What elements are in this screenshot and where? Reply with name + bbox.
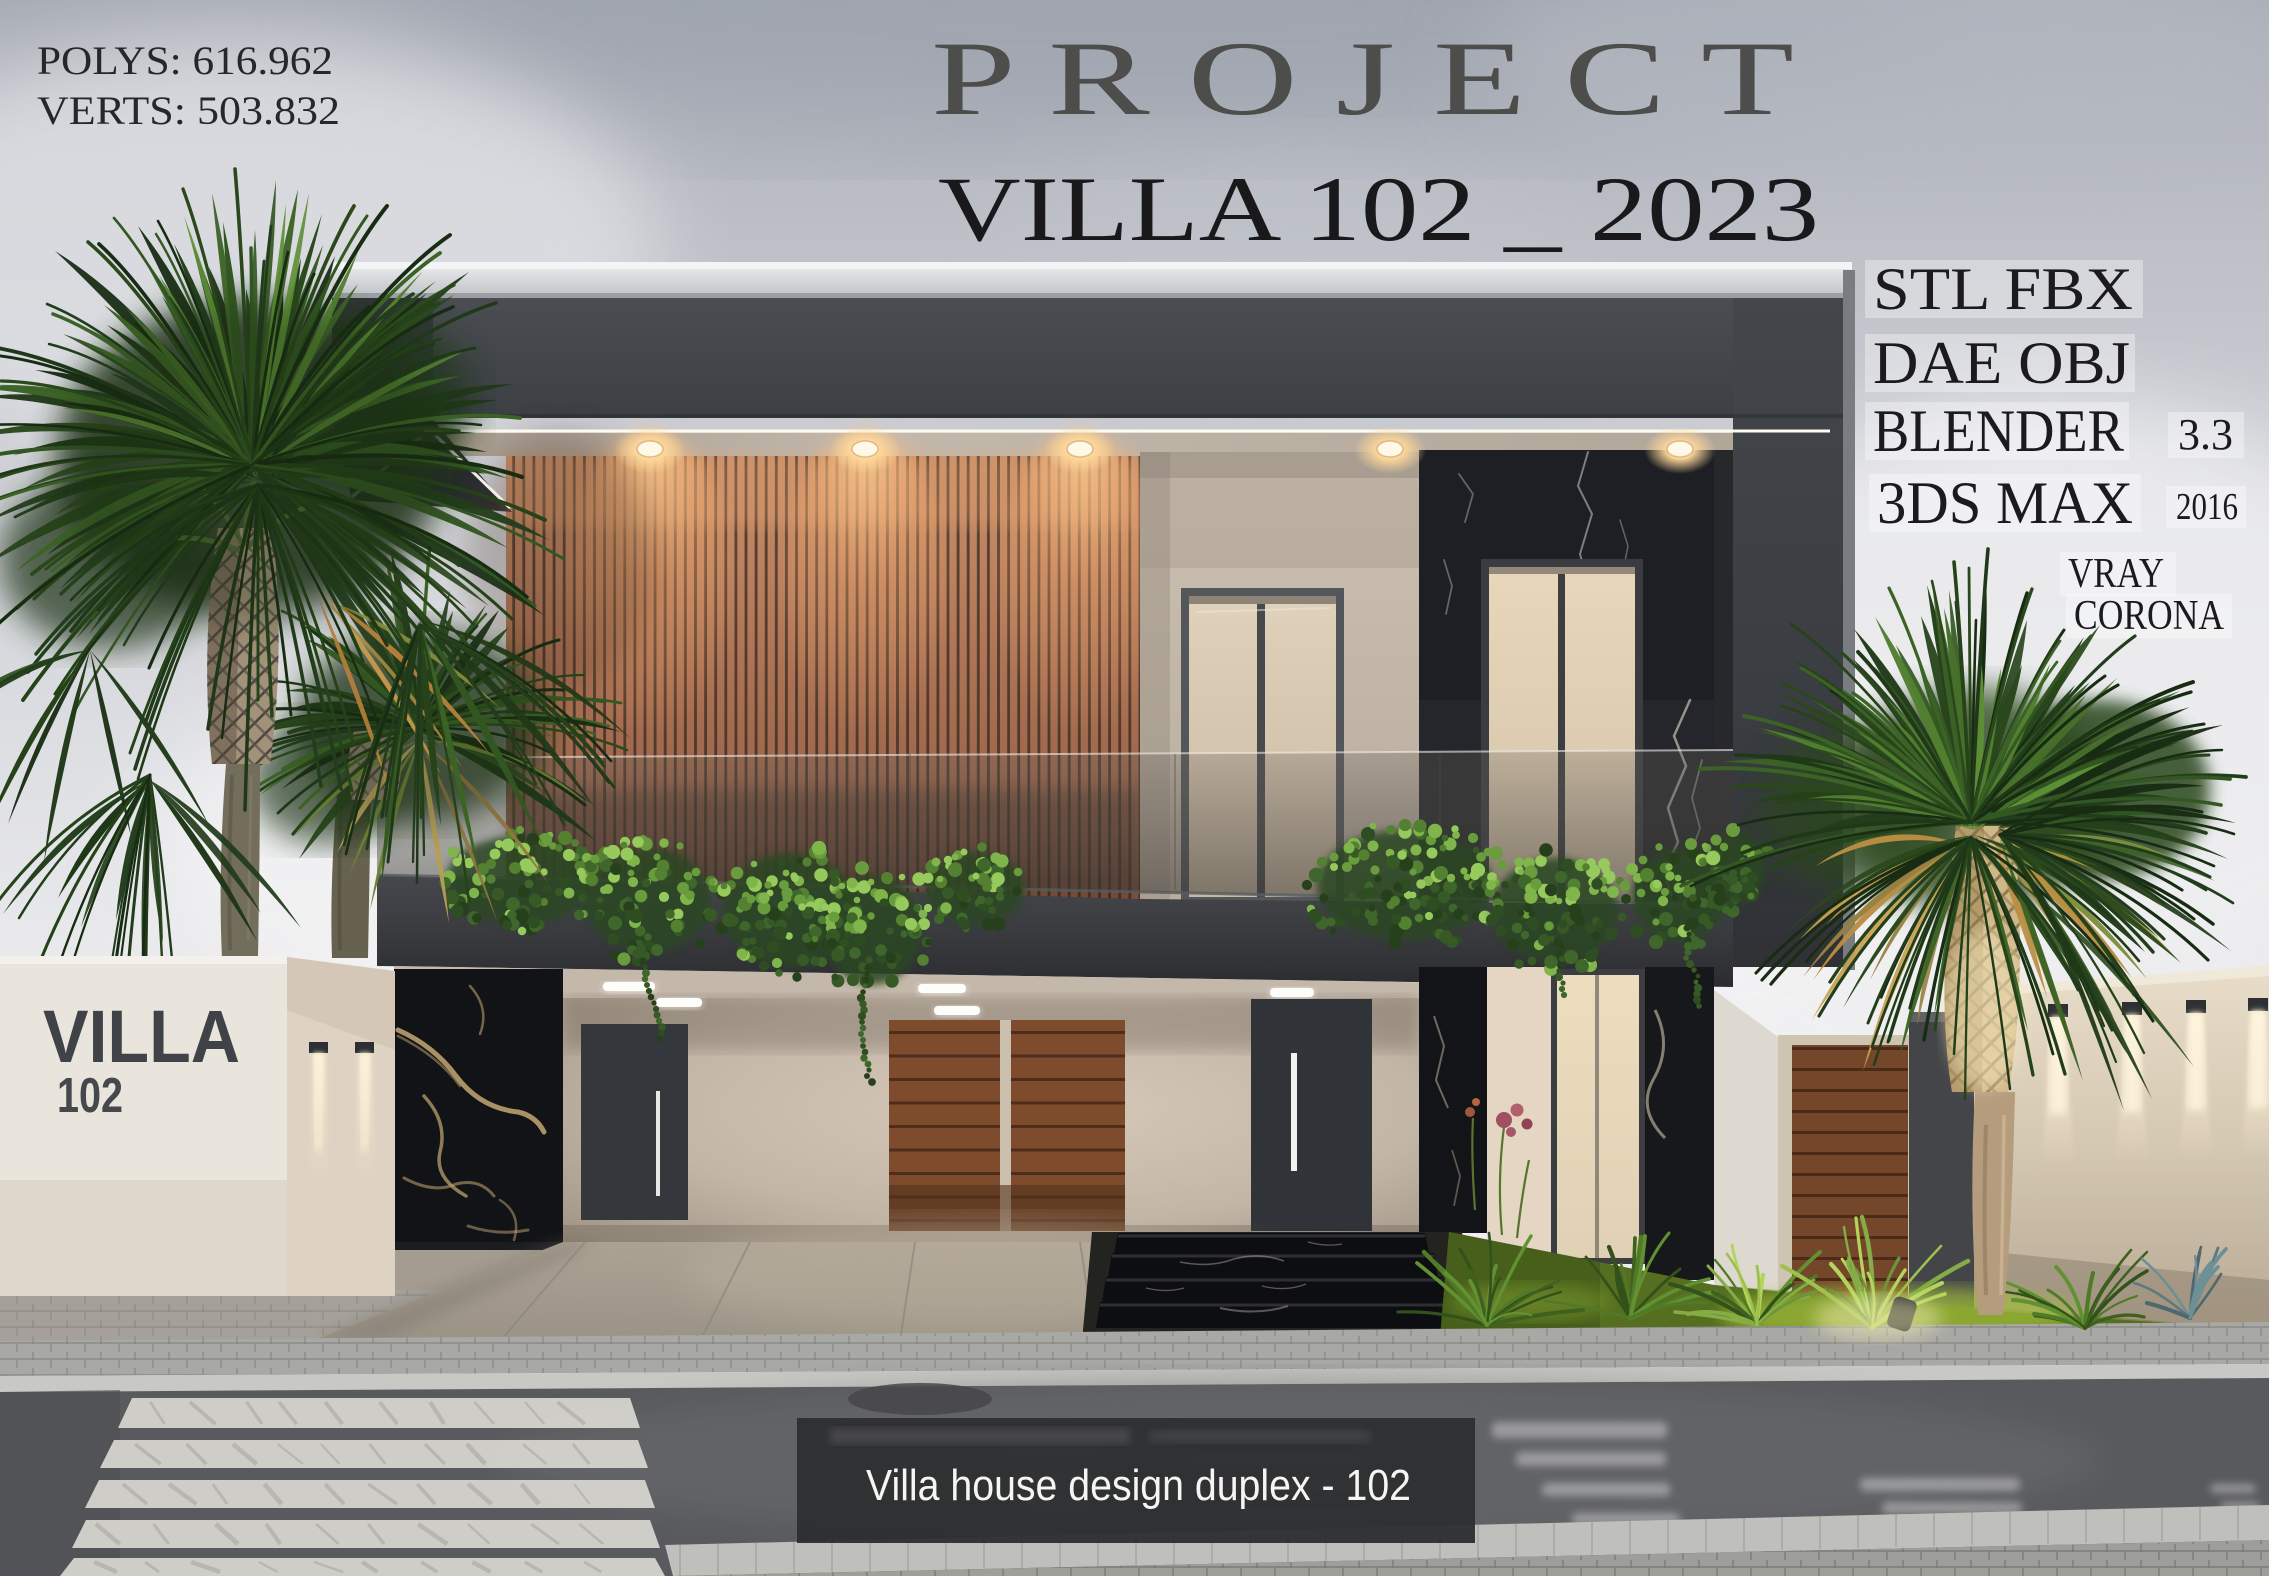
svg-text:CORONA: CORONA: [2074, 593, 2225, 639]
svg-text:DAE OBJ: DAE OBJ: [1873, 330, 2130, 396]
svg-text:VILLA: VILLA: [43, 995, 240, 1078]
svg-text:STL FBX: STL FBX: [1873, 256, 2133, 322]
svg-text:VRAY: VRAY: [2068, 551, 2164, 597]
svg-text:2016: 2016: [2176, 486, 2238, 528]
svg-text:POLYS: 616.962: POLYS: 616.962: [37, 38, 333, 83]
svg-text:Villa house design duplex - 1: Villa house design duplex - 102: [866, 1461, 1411, 1510]
svg-text:VILLA 102 _ 2023: VILLA 102 _ 2023: [938, 158, 1819, 260]
svg-text:102: 102: [57, 1069, 123, 1123]
svg-text:BLENDER: BLENDER: [1873, 398, 2124, 464]
svg-text:3.3: 3.3: [2178, 410, 2233, 459]
svg-text:VERTS: 503.832: VERTS: 503.832: [37, 88, 340, 133]
svg-text:3DS MAX: 3DS MAX: [1877, 470, 2133, 536]
svg-text:P R O J E C T: P R O J E C T: [931, 20, 1794, 137]
